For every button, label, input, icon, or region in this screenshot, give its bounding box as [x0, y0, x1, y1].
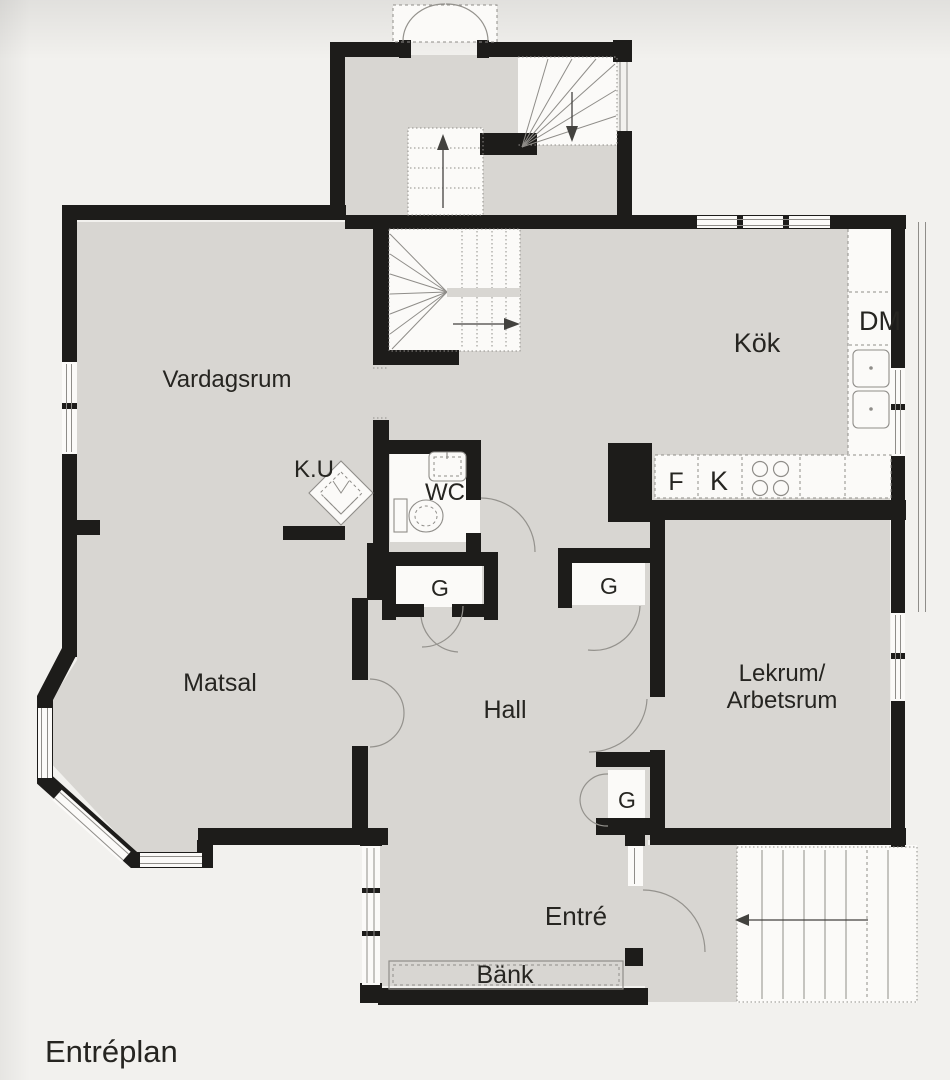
label-closet-1: G: [431, 575, 449, 601]
wall-segment: [283, 526, 345, 540]
wall-segment: [613, 40, 632, 62]
wall-segment: [650, 750, 665, 845]
wall-segment: [352, 598, 368, 680]
closet-wall: [558, 548, 572, 608]
window-mullion: [362, 888, 380, 893]
window-mullion: [362, 931, 380, 936]
page-title: Entréplan: [45, 1034, 178, 1069]
closet-wall: [484, 552, 498, 620]
wall-segment: [378, 988, 648, 1005]
wall-segment: [487, 42, 632, 57]
window-mullion: [891, 404, 905, 410]
wall-segment: [650, 500, 906, 520]
wall-segment: [330, 42, 345, 220]
closet-wall: [396, 604, 424, 617]
wall-segment: [62, 205, 346, 220]
wall-segment: [373, 350, 459, 365]
window: [891, 368, 905, 456]
label-closet-3: G: [618, 787, 636, 813]
door-jamb: [399, 40, 411, 58]
stair-landing: [447, 288, 520, 297]
room-label-playroom-line1: Lekrum/: [739, 660, 826, 687]
entry-deck: [393, 5, 497, 42]
label-freezer: K: [710, 466, 728, 496]
floor-plan-drawing: Vardagsrum Kök Matsal Hall WC K.U Lekrum…: [0, 0, 950, 1080]
room-label-hall: Hall: [483, 696, 526, 724]
closet-wall: [452, 604, 484, 617]
wall-segment: [62, 520, 100, 535]
floor-plan-page: Vardagsrum Kök Matsal Hall WC K.U Lekrum…: [0, 0, 950, 1080]
closet-wall: [382, 552, 396, 620]
window-mullion: [783, 215, 789, 229]
label-tiled-stove: K.U: [294, 456, 334, 483]
toilet-tank: [394, 499, 407, 532]
wall-segment: [625, 948, 643, 966]
exterior-stairs-area: [737, 845, 917, 1003]
closet-wall: [558, 548, 652, 563]
wall-segment: [466, 440, 481, 500]
window-mullion: [737, 215, 743, 229]
window-mullion: [62, 403, 77, 409]
room-label-living: Vardagsrum: [163, 366, 292, 393]
wall-segment: [352, 746, 368, 835]
window-mullion: [891, 653, 905, 659]
window: [362, 846, 380, 985]
room-label-kitchen: Kök: [734, 328, 781, 358]
kitchen-counter-bottom: [655, 455, 891, 498]
photo-shadow-left: [0, 0, 30, 1080]
door-jamb: [477, 40, 489, 58]
label-bench: Bänk: [477, 961, 534, 989]
room-label-dining: Matsal: [183, 669, 257, 697]
room-label-playroom-line2: Arbetsrum: [727, 687, 838, 714]
wall-segment: [608, 443, 652, 522]
wall-segment: [330, 42, 402, 57]
wall-segment: [360, 983, 382, 1003]
label-fridge: F: [668, 468, 683, 496]
window: [697, 216, 830, 228]
wall-segment: [650, 520, 665, 697]
closet-wall: [382, 552, 498, 566]
wall-segment: [650, 828, 906, 845]
label-closet-2: G: [600, 573, 618, 599]
wall-segment: [367, 543, 383, 600]
closet-wall: [596, 752, 652, 767]
porch-floor: [645, 845, 737, 1002]
label-dishwasher: DM: [859, 306, 901, 336]
room-label-wc: WC: [425, 479, 465, 506]
wall-segment: [373, 225, 389, 365]
wall-segment: [617, 131, 632, 217]
room-label-entry: Entré: [545, 901, 607, 931]
window: [628, 846, 643, 886]
